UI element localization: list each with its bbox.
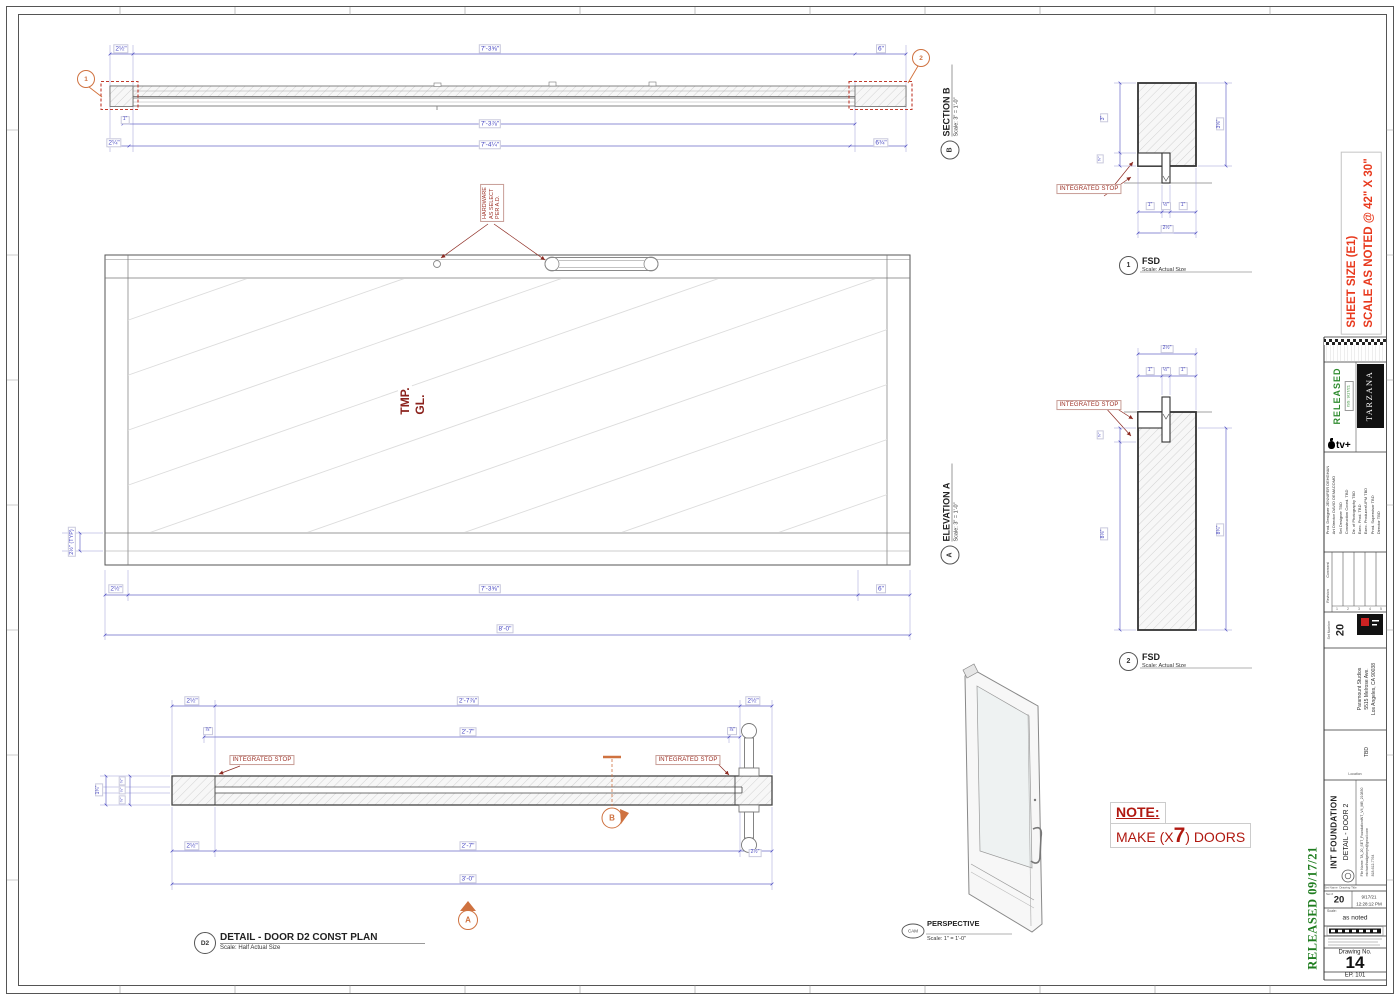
detail-tag: D2	[194, 932, 216, 954]
glass-label-line: TMP.	[398, 385, 412, 416]
table-header: Revision	[1326, 589, 1330, 602]
detail-number: 1	[1119, 256, 1138, 275]
dim-label: ⅞"	[203, 727, 213, 735]
note-body-box: MAKE (X7) DOORS	[1110, 823, 1251, 848]
integrated-stop-label: INTEGRATED STOP	[229, 755, 294, 765]
integrated-stop-label: INTEGRATED STOP	[655, 755, 720, 765]
contact-phone: 818-612-7764	[1371, 788, 1376, 877]
hardware-note-line: AS SELECT	[489, 187, 496, 219]
revision-row: 1	[1336, 607, 1338, 611]
sheet-size-line: SCALE AS NOTED @ 42" X 30"	[1361, 158, 1378, 327]
released-label: RELEASED	[1332, 367, 1342, 424]
dim-label: 7'-3⅝"	[479, 584, 501, 593]
view-scale: Scale: Actual Size	[1142, 266, 1186, 273]
location-value: TBD	[1365, 747, 1371, 757]
dim-label: 2½"	[745, 696, 760, 705]
revision-row: 2	[1347, 607, 1349, 611]
integrated-stop-label: INTEGRATED STOP	[1056, 184, 1121, 194]
print-time: 12:28:12 PM	[1356, 901, 1382, 906]
scale-label: Scale:	[1327, 909, 1337, 913]
view-title: FSD	[1142, 256, 1186, 266]
set-number: 20	[1335, 624, 1348, 636]
dim-label: ¾"	[119, 796, 126, 805]
view-scale: Scale: 3" = 1'-0"	[952, 464, 959, 542]
view-title: PERSPECTIVE	[927, 919, 980, 928]
set-hash-label: Set #	[1326, 892, 1333, 896]
detail-number: 2	[1119, 652, 1138, 671]
view-title: ELEVATION A	[941, 464, 952, 542]
dim-label: 6"	[876, 584, 886, 593]
view-title: FSD	[1142, 652, 1186, 662]
dim-label: 2½"	[1161, 345, 1174, 353]
dim-label: ¾"	[119, 777, 126, 786]
dim-label: ½"	[1161, 202, 1171, 210]
detail-callout-right: 2	[912, 49, 930, 67]
network-label: tv+	[1336, 440, 1351, 451]
revision-row: 5	[1380, 607, 1382, 611]
section-marker-a: A	[465, 915, 471, 924]
fsd2-label: 2 FSD Scale: Actual Size	[1119, 652, 1186, 671]
view-title: DETAIL - DOOR D2 CONST PLAN	[220, 932, 425, 944]
print-date: 9/17/21	[1361, 894, 1376, 899]
dim-label: 7'-3⅞"	[479, 119, 501, 128]
perspective-tag: CAM	[908, 928, 918, 933]
dim-label: 8'-0"	[497, 624, 514, 633]
hardware-note-line: PER A.D.	[495, 187, 502, 219]
dim-label: ⅝"	[1097, 431, 1104, 440]
dim-label: 2½"	[184, 696, 199, 705]
elevation-tag: A	[941, 546, 960, 565]
section-b-label: B SECTION B Scale: 3" = 1'-0"	[941, 65, 960, 160]
view-scale: Scale: 3" = 1'-0"	[952, 65, 959, 137]
sheet-linework	[0, 0, 1400, 1000]
dim-label: 2'-7⅞"	[457, 696, 479, 705]
glass-label-line: GL.	[413, 393, 427, 417]
dim-label: 8¾"	[1216, 524, 1224, 537]
dim-label: ¼"	[119, 786, 126, 795]
view-scale: Scale: 1" = 1'-0"	[927, 936, 966, 942]
dim-label: ⅝"	[1097, 155, 1104, 164]
address-line: Los Angeles, CA 90038	[1370, 663, 1377, 715]
dim-label: 1"	[1146, 367, 1155, 375]
apple-icon	[1328, 441, 1335, 449]
dim-label: 1"	[1146, 202, 1155, 210]
show-title: TARZANA	[1365, 371, 1375, 421]
revision-row: 4	[1369, 607, 1371, 611]
credits-block: Prod. Designer JENNIFER DEHGHAN Art Dire…	[1325, 466, 1383, 534]
dim-label: 2¼"	[106, 138, 121, 147]
dim-label: 7'-3⅝"	[479, 44, 501, 53]
view-scale: Scale: Half Actual Size	[220, 944, 425, 951]
scale-value: as noted	[1343, 914, 1368, 921]
detail-callout-left: 1	[77, 70, 95, 88]
location-label: Location	[1348, 772, 1361, 776]
column-header: Drawing Title	[1339, 886, 1356, 889]
detail-d2-label: D2 DETAIL - DOOR D2 CONST PLAN Scale: Ha…	[194, 932, 425, 954]
view-scale: Scale: Actual Size	[1142, 662, 1186, 669]
dim-label: 2'-7"	[460, 841, 477, 850]
address-line: Paramount Studios	[1357, 663, 1364, 715]
column-header: Set Name	[1324, 886, 1337, 889]
dim-label: 1"	[1179, 367, 1188, 375]
sheet-size-line: SHEET SIZE (E1)	[1344, 158, 1361, 327]
episode-number: EP. 101	[1345, 973, 1366, 980]
credit-line: Director TBD	[1376, 466, 1382, 534]
note-count: 7	[1174, 825, 1186, 846]
issue-date: ISS: 9/17/21	[1345, 381, 1354, 411]
note-text: MAKE (X	[1116, 829, 1174, 845]
released-stamp: RELEASED 09/17/21	[1306, 846, 1321, 969]
dim-label: ½"	[1161, 367, 1171, 375]
dim-label: 2½"	[184, 841, 199, 850]
credit-line: Art Director DAVID DEMACOMO	[1332, 466, 1338, 534]
dim-label: 2½"	[113, 44, 128, 53]
drawing-title: DETAIL - DOOR 2	[1343, 804, 1351, 861]
table-header: Comment	[1326, 562, 1330, 577]
view-title: SECTION B	[941, 65, 952, 137]
address-line: 5515 Melrose Ave.	[1364, 663, 1371, 715]
dim-label: 8⅛"	[1100, 528, 1108, 541]
dim-label: 6"	[876, 44, 886, 53]
apple-tv-logo: tv+	[1328, 440, 1351, 451]
dim-label: 7'-4¼"	[479, 140, 501, 149]
revision-row: 3	[1358, 607, 1360, 611]
dim-label: 1¾"	[95, 784, 103, 797]
dim-label: 6¾"	[873, 138, 888, 147]
hardware-note: HARDWARE AS SELECT PER A.D.	[480, 184, 504, 222]
set-hash: 20	[1334, 896, 1345, 907]
dim-label: 1"	[1179, 202, 1188, 210]
dim-label: ⅞"	[727, 727, 737, 735]
sheet-size-stamp: SHEET SIZE (E1) SCALE AS NOTED @ 42" X 3…	[1341, 151, 1382, 334]
dim-label: 2'-7"	[460, 727, 477, 736]
dim-label: 2½"	[749, 849, 762, 857]
set-name: INT FOUNDATION	[1329, 795, 1338, 868]
dim-label: 1"	[121, 116, 130, 124]
dim-label: 2½"	[108, 584, 123, 593]
set-number-label: Set Number	[1327, 621, 1331, 640]
studio-address: Paramount Studios 5515 Melrose Ave. Los …	[1357, 663, 1377, 715]
fsd1-label: 1 FSD Scale: Actual Size	[1119, 256, 1186, 275]
note-title: NOTE:	[1116, 804, 1160, 820]
dim-label: 2½"	[1161, 225, 1174, 233]
hardware-note-line: HARDWARE	[482, 187, 489, 219]
section-marker-b: B	[609, 813, 615, 822]
drawing-sheet: 2½" 7'-3⅝" 6" 1" 7'-3⅞" 2¼" 7'-4¼" 6¾" 1…	[0, 0, 1400, 1000]
note-title-box: NOTE:	[1110, 802, 1166, 824]
dim-label: 3⅝"	[1216, 118, 1224, 131]
tempered-glass-label: TMP. GL.	[398, 385, 428, 416]
file-info-block: File Name: TA_20_SET_FoundationINT_V4_MB…	[1360, 788, 1376, 877]
dim-label: 2½" (TYP)	[68, 527, 76, 557]
section-tag: B	[941, 141, 960, 160]
elevation-a-label: A ELEVATION A Scale: 3" = 1'-0"	[941, 464, 960, 565]
dim-label: 3"	[1100, 114, 1108, 123]
dim-label: 3'-0"	[460, 874, 477, 883]
note-text: ) DOORS	[1185, 829, 1245, 845]
integrated-stop-label: INTEGRATED STOP	[1056, 400, 1121, 410]
drawing-number: 14	[1346, 953, 1365, 973]
